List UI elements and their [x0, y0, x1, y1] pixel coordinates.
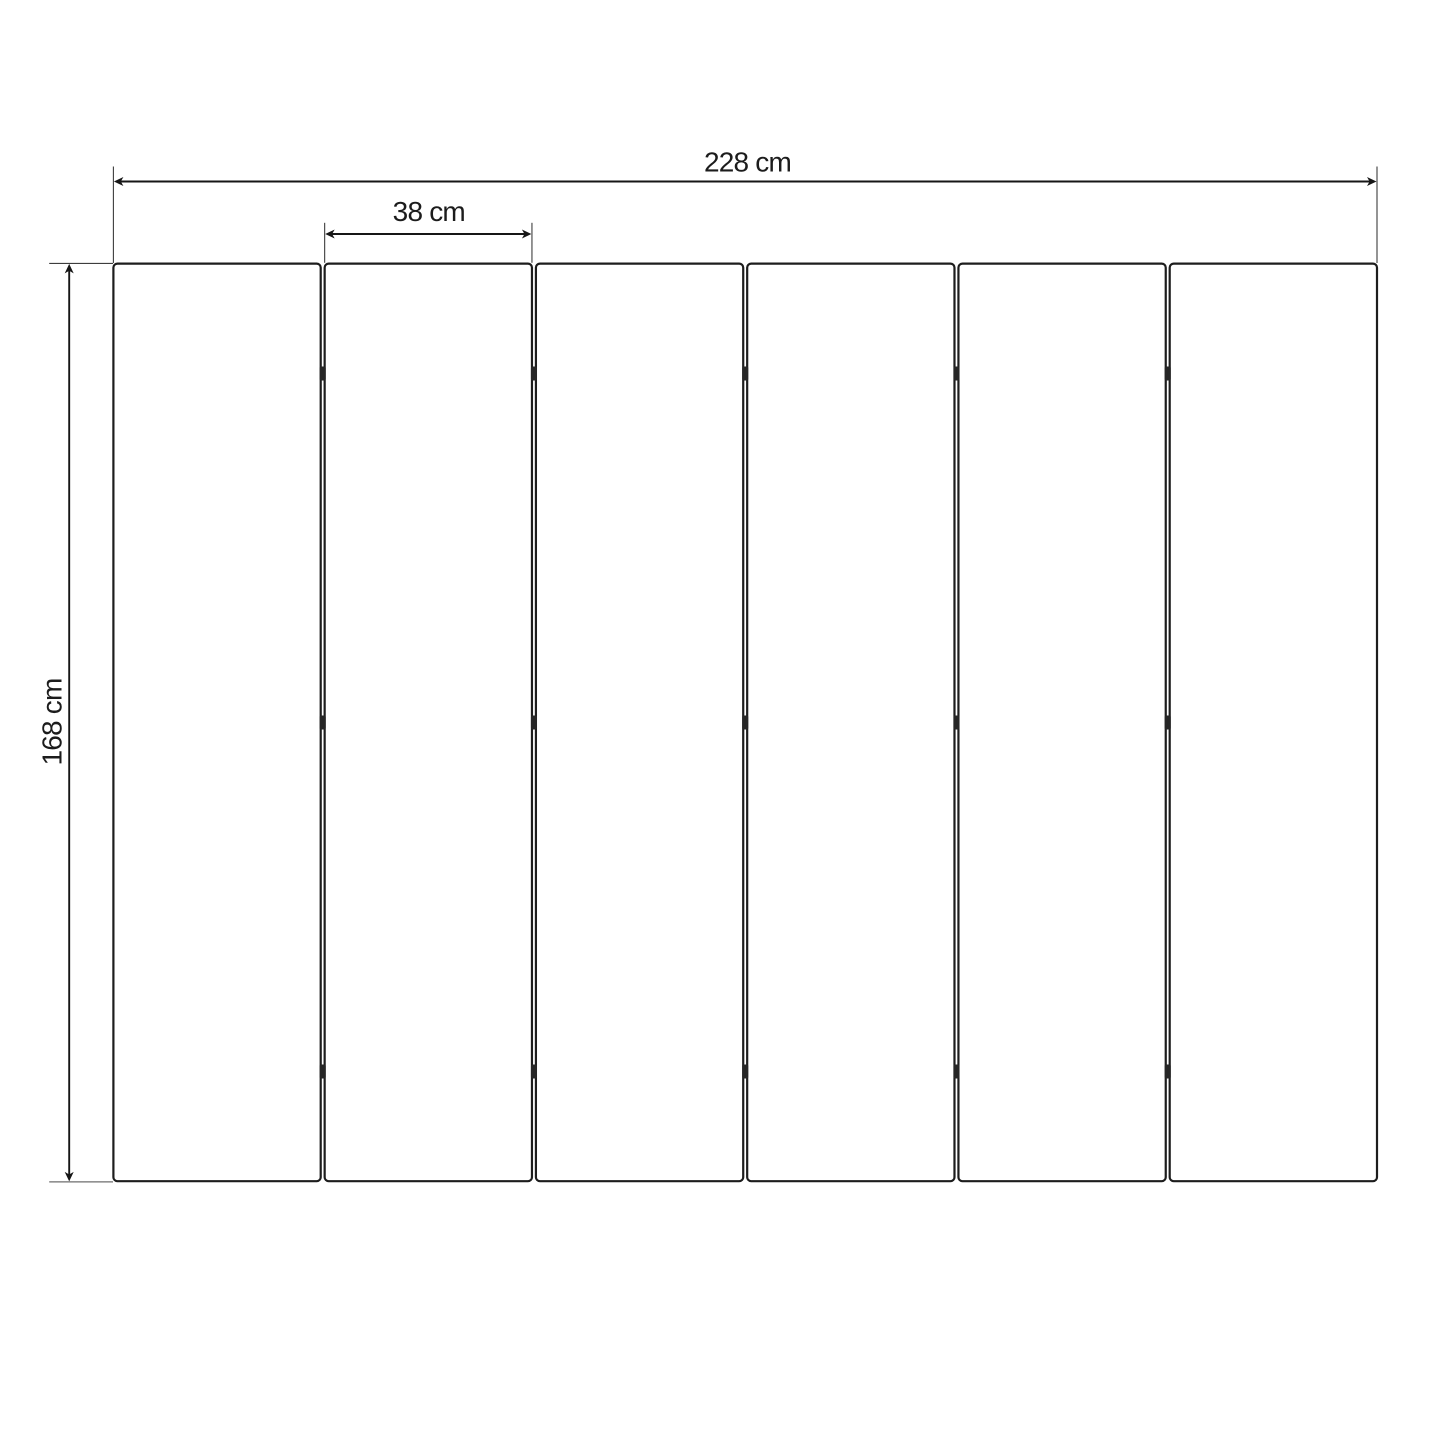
svg-text:168 cm: 168 cm — [36, 678, 67, 765]
svg-text:228 cm: 228 cm — [704, 146, 791, 177]
svg-text:38 cm: 38 cm — [393, 196, 465, 227]
